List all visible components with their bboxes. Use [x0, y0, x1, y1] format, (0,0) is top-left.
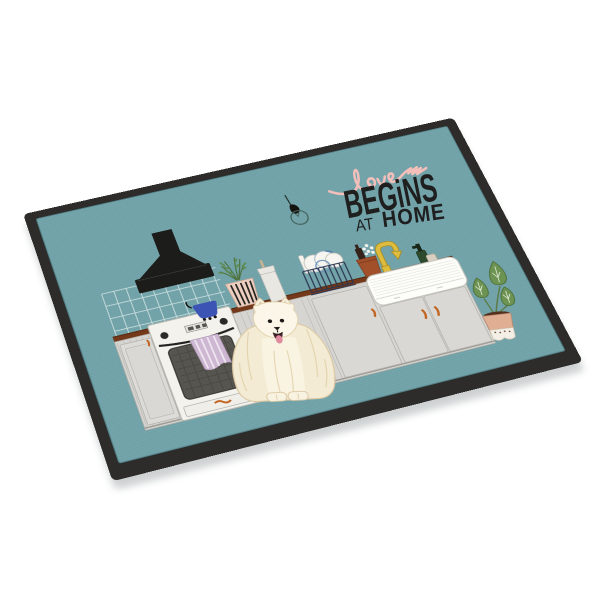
svg-text:AT: AT: [355, 215, 376, 235]
